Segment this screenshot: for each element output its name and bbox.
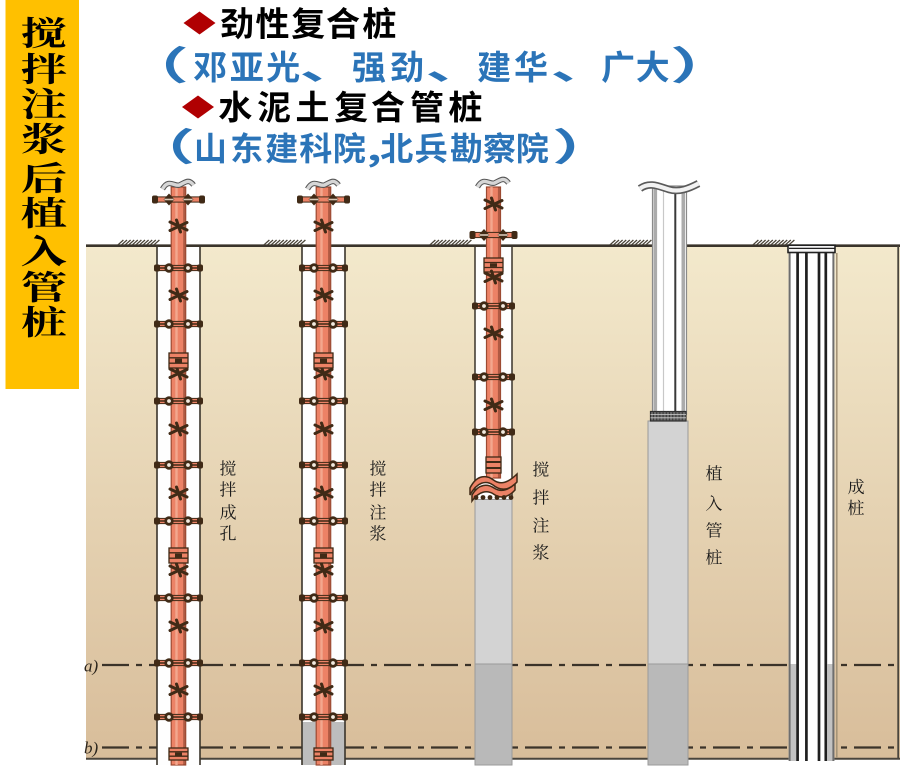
svg-text:a): a) [84,657,99,676]
svg-text:b): b) [84,739,99,758]
